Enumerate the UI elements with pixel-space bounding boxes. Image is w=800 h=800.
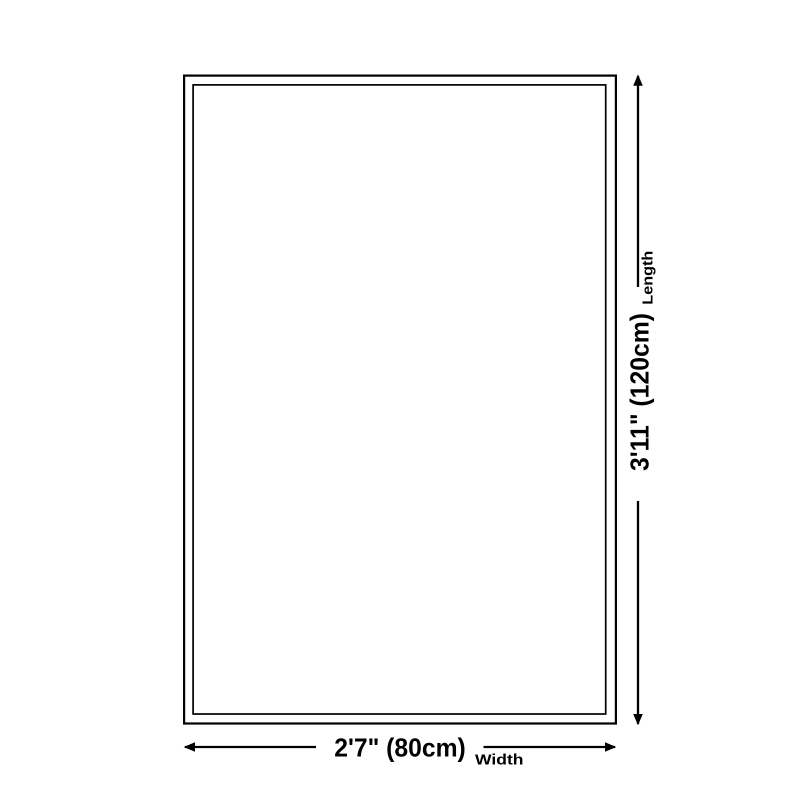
svg-text:2'7" (80cm): 2'7" (80cm): [334, 733, 466, 763]
svg-text:Length: Length: [640, 251, 656, 305]
svg-text:3'11" (120cm): 3'11" (120cm): [625, 313, 655, 471]
svg-text:Width: Width: [475, 753, 524, 769]
